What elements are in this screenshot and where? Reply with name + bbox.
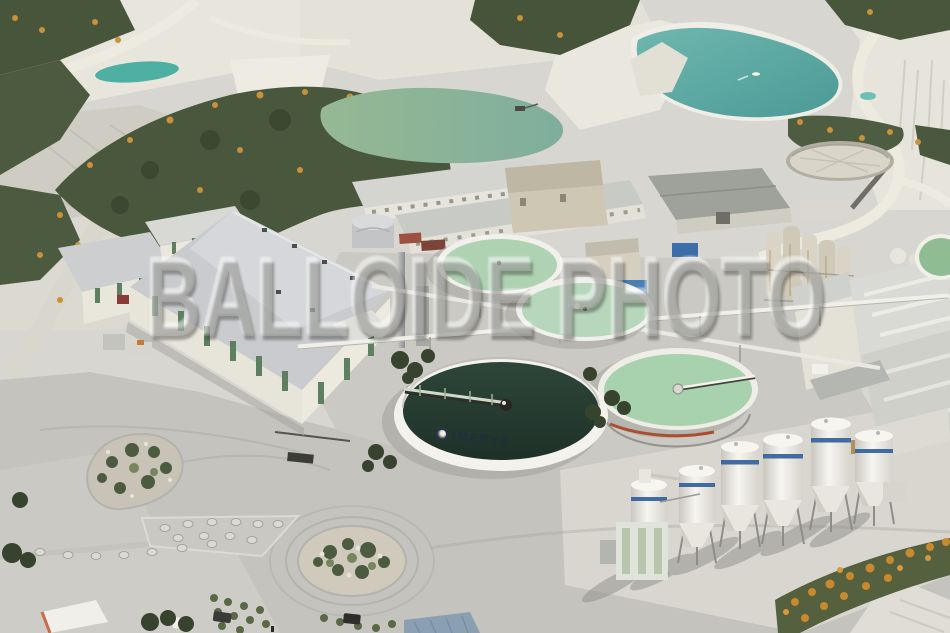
orange-vehicle (137, 340, 144, 345)
red-truck (117, 295, 129, 304)
dark-car (343, 613, 361, 625)
chimney-stack (398, 252, 405, 348)
small-puddle (860, 92, 876, 100)
mill-building (505, 160, 608, 233)
aerial-photo: IMERYS BALLOIDE PHOTO (0, 0, 950, 633)
pedestrian (271, 626, 274, 632)
round-bin (890, 248, 906, 264)
blue-skip (672, 243, 698, 257)
yard-shed (883, 482, 905, 502)
small-shed-right (800, 200, 850, 218)
aerial-scene (0, 0, 950, 633)
quonset-hut (352, 214, 394, 248)
white-truck (812, 364, 828, 374)
roundabout-island (298, 526, 406, 596)
dust-collector (639, 469, 651, 483)
empty-round-basin (786, 141, 894, 181)
